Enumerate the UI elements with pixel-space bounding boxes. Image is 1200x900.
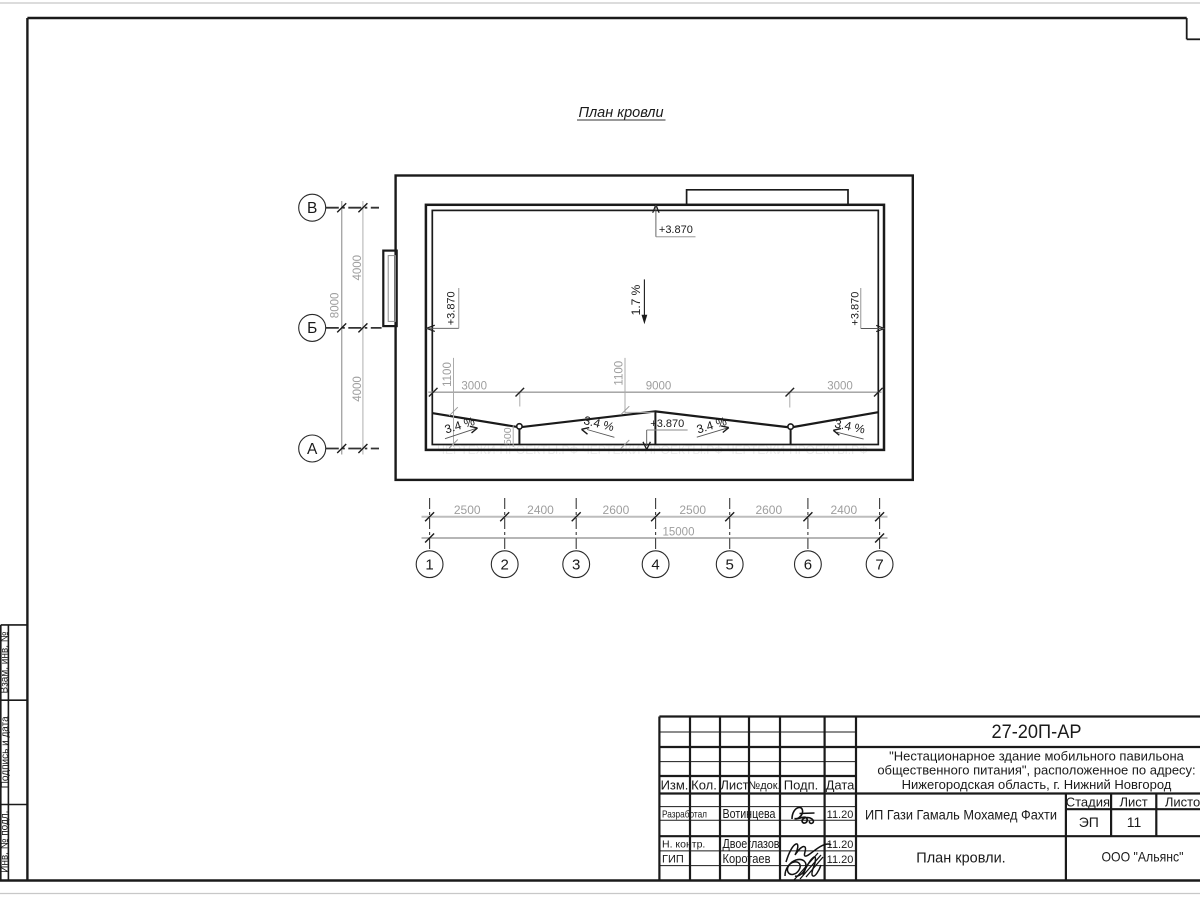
svg-text:№док.: №док. [748, 780, 780, 792]
svg-text:1.7 %: 1.7 % [629, 284, 643, 315]
svg-text:2400: 2400 [527, 503, 554, 517]
svg-text:План кровли: План кровли [578, 105, 663, 121]
svg-text:В: В [307, 200, 317, 217]
svg-text:3: 3 [572, 557, 580, 574]
svg-text:А: А [307, 441, 318, 458]
svg-text:3000: 3000 [827, 381, 853, 393]
svg-text:Кол.: Кол. [691, 778, 717, 793]
svg-text:15000: 15000 [663, 526, 695, 538]
svg-text:4: 4 [651, 557, 659, 574]
svg-text:+3.870: +3.870 [659, 224, 693, 236]
svg-text:ГИП: ГИП [662, 853, 684, 865]
svg-text:2: 2 [501, 557, 509, 574]
svg-text:Нижегородская область, г. Нижн: Нижегородская область, г. Нижний Новгоро… [902, 777, 1172, 792]
svg-text:Двоеглазов: Двоеглазов [723, 837, 780, 851]
svg-text:ЭП: ЭП [1079, 814, 1099, 830]
svg-text:+3.870: +3.870 [446, 291, 458, 325]
svg-text:1100: 1100 [442, 362, 454, 387]
svg-text:7: 7 [875, 557, 883, 574]
svg-text:5: 5 [726, 557, 734, 574]
svg-text:500: 500 [502, 427, 514, 445]
svg-text:11: 11 [1127, 814, 1142, 830]
svg-text:2600: 2600 [755, 503, 782, 517]
svg-text:27-20П-АР: 27-20П-АР [992, 722, 1082, 743]
svg-text:2400: 2400 [830, 503, 857, 517]
svg-text:2600: 2600 [603, 503, 630, 517]
svg-text:+3.870: +3.870 [850, 292, 862, 326]
svg-text:8000: 8000 [330, 293, 342, 319]
svg-text:Взам. инв. №: Взам. инв. № [0, 631, 11, 693]
svg-text:ИП Гази Гамаль Мохамед Фахти: ИП Гази Гамаль Мохамед Фахти [865, 808, 1057, 823]
svg-text:Разработал: Разработал [662, 809, 707, 821]
svg-text:Стадия: Стадия [1066, 794, 1110, 809]
svg-text:2500: 2500 [454, 503, 481, 517]
svg-text:+3.870: +3.870 [650, 418, 684, 430]
svg-text:Дата: Дата [826, 778, 856, 793]
svg-text:Подпись и дата: Подпись и дата [0, 716, 11, 788]
svg-text:Лист: Лист [720, 778, 748, 793]
svg-text:Вотинцева: Вотинцева [723, 807, 776, 821]
svg-text:Б: Б [307, 320, 317, 337]
svg-text:1100: 1100 [614, 361, 626, 386]
svg-text:9000: 9000 [646, 381, 672, 393]
svg-text:Листов: Листов [1165, 794, 1200, 809]
svg-text:Н. контр.: Н. контр. [662, 839, 705, 851]
svg-text:2500: 2500 [679, 503, 706, 517]
svg-text:4000: 4000 [352, 376, 364, 402]
svg-text:Инв. № подл.: Инв. № подл. [0, 811, 10, 873]
svg-text:3000: 3000 [461, 381, 487, 393]
svg-text:Коротаев: Коротаев [723, 852, 771, 866]
svg-text:Лист: Лист [1119, 794, 1147, 809]
svg-text:Изм.: Изм. [661, 778, 689, 793]
svg-text:11.20: 11.20 [827, 809, 854, 821]
svg-text:"Нестационарное здание мобильн: "Нестационарное здание мобильного павиль… [889, 749, 1185, 764]
svg-text:ООО "Альянс": ООО "Альянс" [1102, 849, 1184, 865]
svg-text:4000: 4000 [352, 255, 364, 281]
svg-text:11.20: 11.20 [827, 854, 854, 866]
svg-text:1: 1 [425, 557, 433, 574]
svg-text:6: 6 [804, 557, 812, 574]
svg-text:План кровли.: План кровли. [916, 851, 1005, 867]
svg-text:общественного питания", распол: общественного питания", расположенное по… [877, 763, 1195, 778]
svg-text:Подп.: Подп. [784, 778, 819, 793]
